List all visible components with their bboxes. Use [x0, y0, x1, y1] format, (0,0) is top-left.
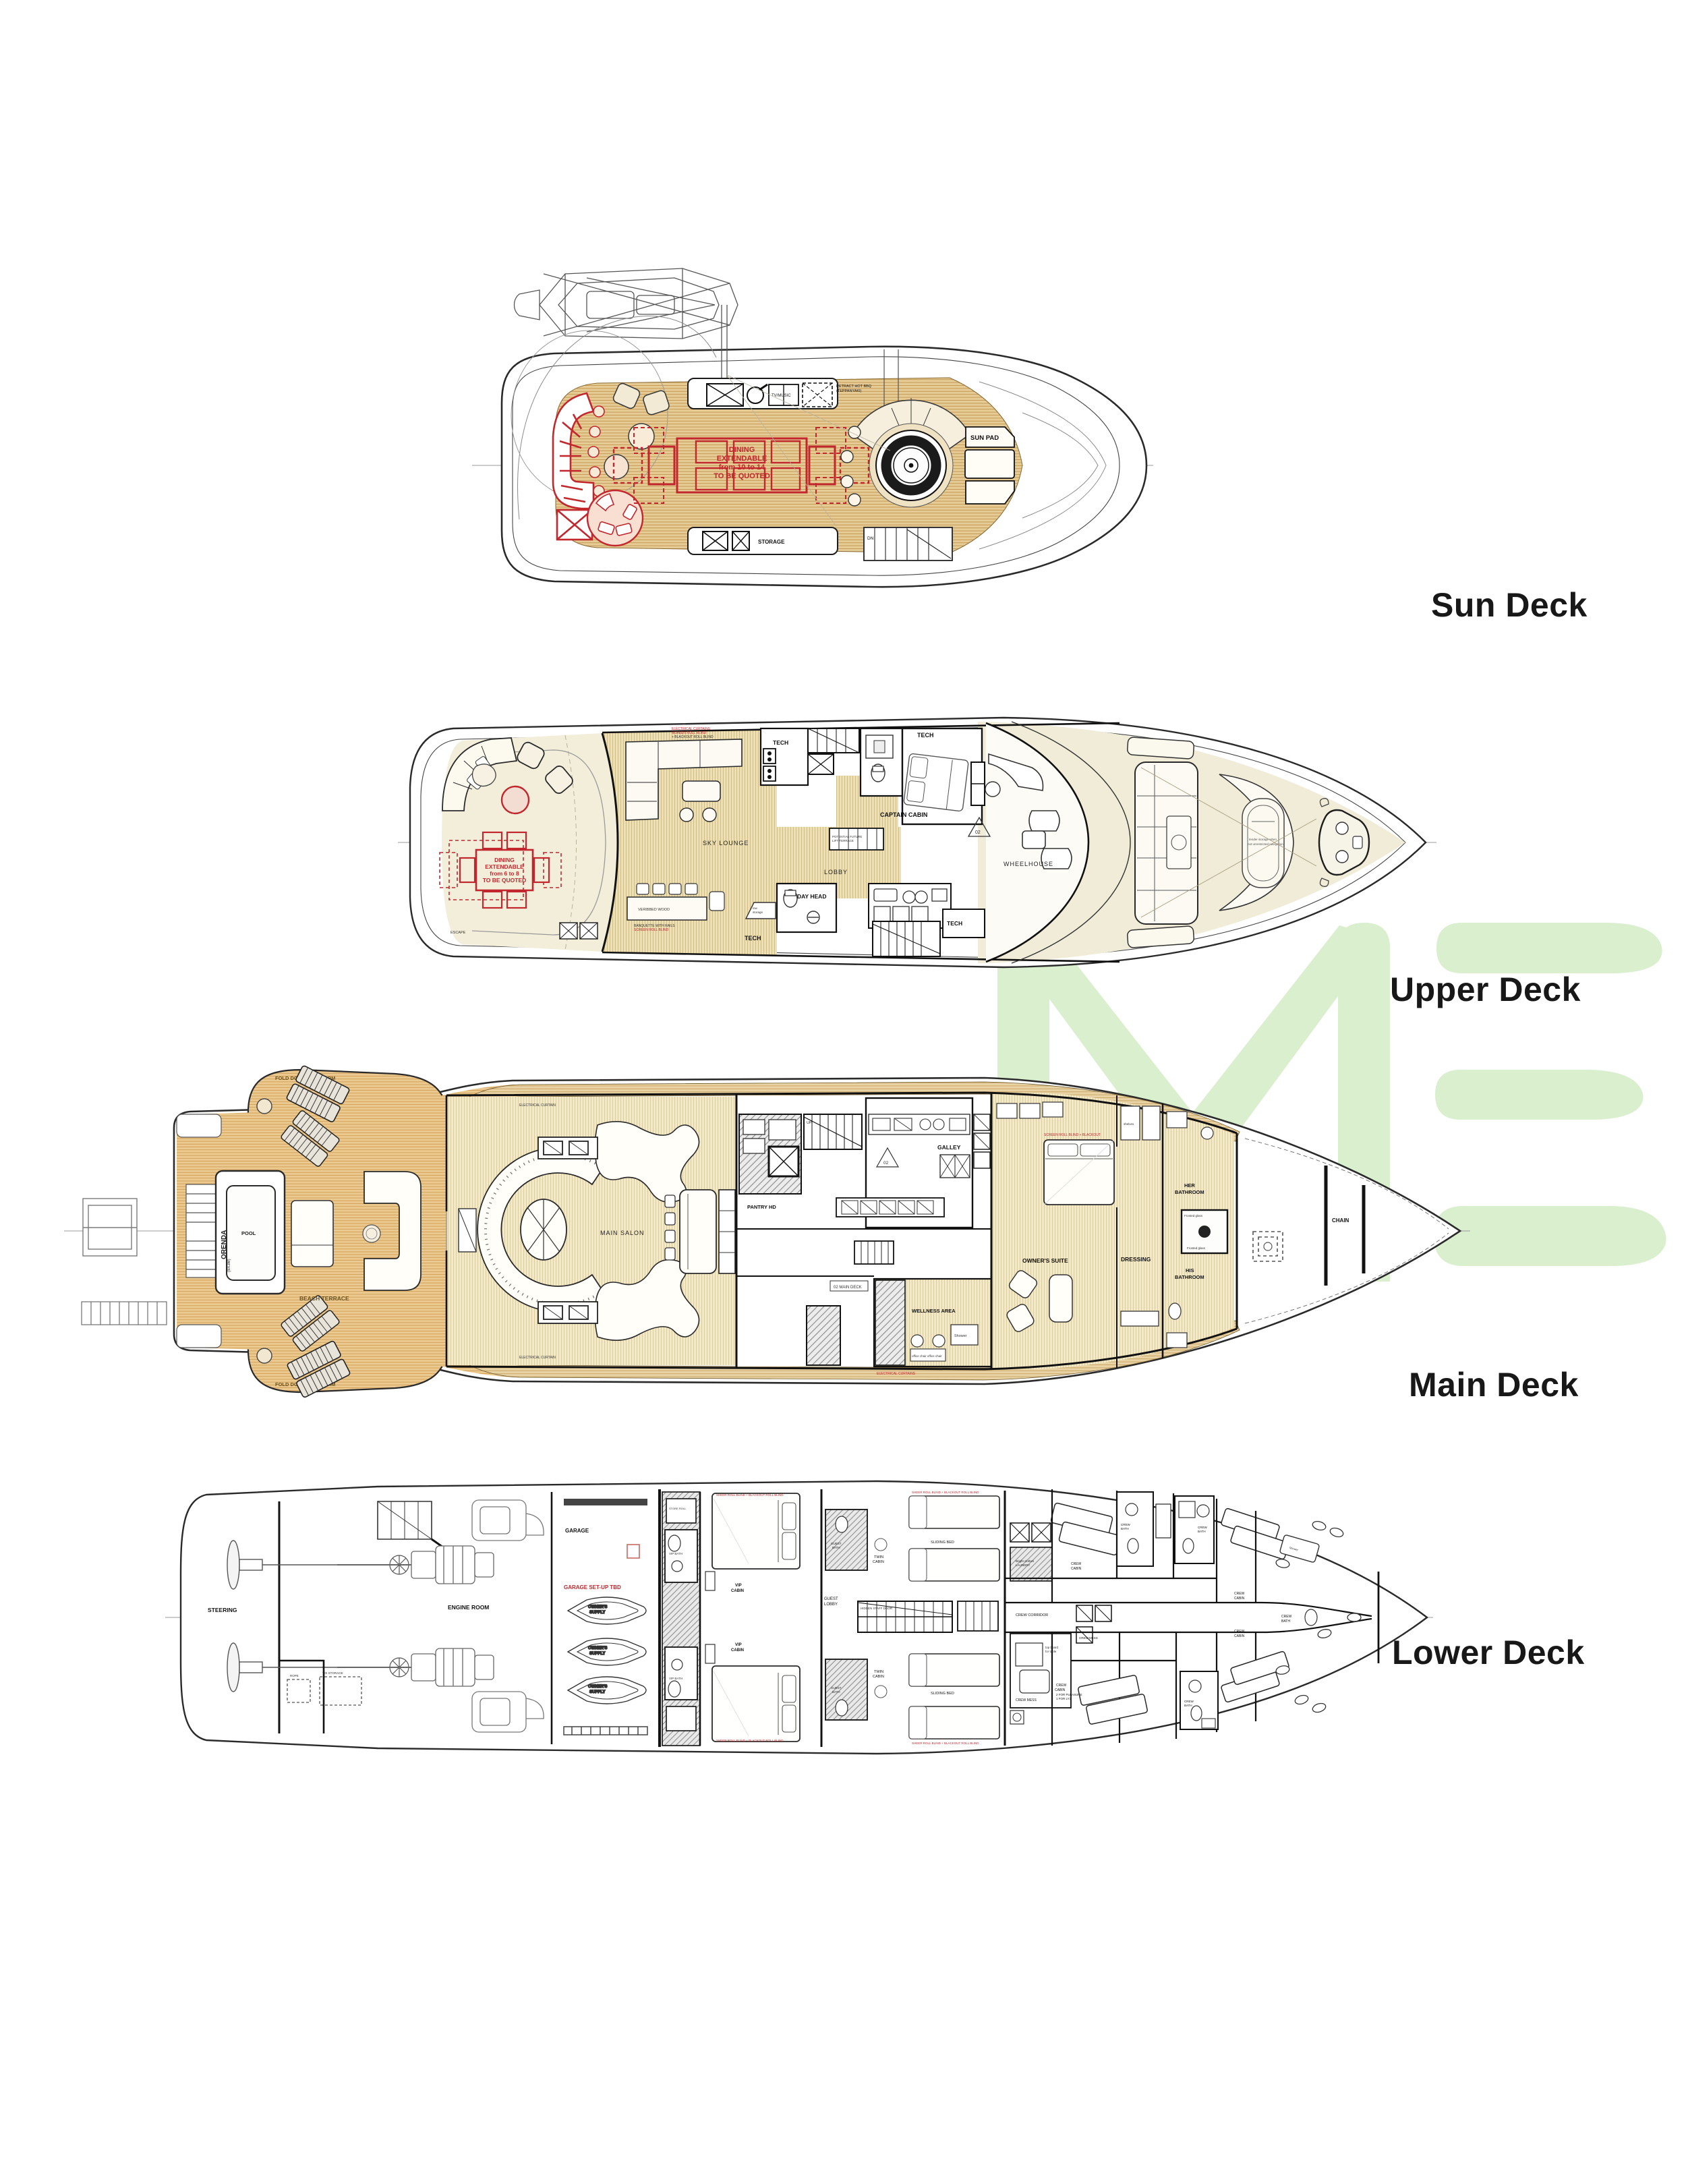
svg-text:CREW CORRIDOR: CREW CORRIDOR [1016, 1613, 1048, 1617]
svg-text:from 10 to 14: from 10 to 14 [719, 463, 765, 471]
svg-text:EXTENDABLE: EXTENDABLE [717, 455, 767, 463]
svg-text:CABIN: CABIN [1055, 1688, 1066, 1692]
svg-text:VIP BATH: VIP BATH [669, 1552, 682, 1555]
svg-text:LAUNDRY: LAUNDRY [1016, 1563, 1030, 1567]
svg-text:storage: storage [753, 911, 763, 914]
svg-text:MAIN SALON: MAIN SALON [600, 1230, 645, 1236]
svg-text:SHEER ROLL BLIND + BLACKOUT RO: SHEER ROLL BLIND + BLACKOUT ROLL BLIND [716, 1739, 784, 1742]
svg-text:TECH: TECH [917, 732, 934, 739]
svg-text:GUEST: GUEST [824, 1597, 838, 1601]
svg-text:OWNER'S: OWNER'S [588, 1605, 607, 1609]
svg-text:LIFT TERRACE: LIFT TERRACE [832, 839, 854, 842]
svg-text:WHEELHOUSE: WHEELHOUSE [1004, 861, 1053, 867]
svg-text:CREW MESS: CREW MESS [1079, 1636, 1098, 1640]
svg-text:BATH: BATH [832, 1690, 840, 1694]
svg-text:CREW: CREW [1184, 1700, 1194, 1703]
svg-text:UP: UP [807, 1121, 812, 1125]
svg-text:Shower: Shower [954, 1334, 967, 1338]
svg-text:DINING: DINING [729, 446, 755, 454]
svg-text:ESCAPE: ESCAPE [450, 931, 466, 935]
svg-text:EXTENDABLE: EXTENDABLE [485, 863, 524, 870]
svg-text:SCREEN ROLL BLIND: SCREEN ROLL BLIND [634, 928, 669, 932]
svg-text:BATH: BATH [832, 1546, 840, 1549]
svg-text:(8X3M): (8X3M) [227, 1259, 231, 1272]
svg-text:CABIN: CABIN [873, 1675, 884, 1679]
svg-text:HIDDEN STAFF DOOR: HIDDEN STAFF DOOR [861, 1607, 893, 1610]
svg-text:CREW: CREW [1234, 1592, 1245, 1596]
svg-text:GUEST: GUEST [831, 1686, 842, 1690]
svg-text:GARAGE SET-UP TBD: GARAGE SET-UP TBD [564, 1584, 621, 1590]
svg-text:(TEPPANYAKI): (TEPPANYAKI) [836, 389, 862, 393]
svg-text:TECH: TECH [745, 935, 761, 942]
svg-text:CREW: CREW [1071, 1562, 1082, 1566]
svg-text:not unrestricted navigation: not unrestricted navigation [1248, 842, 1283, 846]
svg-text:CREW: CREW [1281, 1615, 1292, 1619]
svg-text:low: low [753, 907, 758, 910]
svg-text:TWIN: TWIN [874, 1555, 883, 1559]
svg-text:TOI STORAGE: TOI STORAGE [322, 1671, 343, 1675]
svg-text:SHEER ROLL BLIND + BLACKOUT RO: SHEER ROLL BLIND + BLACKOUT ROLL BLIND [716, 1493, 784, 1497]
svg-text:from 6 to 8: from 6 to 8 [490, 870, 519, 877]
svg-text:CREW: CREW [1056, 1684, 1067, 1688]
svg-text:BATH: BATH [1281, 1619, 1290, 1623]
svg-text:DAY HEAD: DAY HEAD [797, 893, 826, 900]
svg-text:OWNER'S SUITE: OWNER'S SUITE [1022, 1257, 1068, 1264]
svg-text:SCREEN ROLL BLIND + BLACKOUT: SCREEN ROLL BLIND + BLACKOUT [1044, 1133, 1101, 1137]
svg-text:SUPPLY: SUPPLY [589, 1652, 605, 1656]
svg-text:2 FOR PLEASURE: 2 FOR PLEASURE [1056, 1693, 1082, 1696]
svg-text:tender storage when: tender storage when [1249, 838, 1277, 841]
svg-text:SKY LOUNGE: SKY LOUNGE [703, 840, 749, 846]
svg-text:POOL: POOL [241, 1230, 256, 1236]
svg-text:VIP: VIP [735, 1643, 742, 1647]
svg-text:ELECTRICAL CURTAINS: ELECTRICAL CURTAINS [877, 1372, 916, 1376]
svg-text:SLIDING BED: SLIDING BED [931, 1692, 954, 1696]
svg-text:CABIN: CABIN [1234, 1597, 1245, 1601]
svg-text:1 FOR LY3: 1 FOR LY3 [1056, 1697, 1072, 1700]
svg-text:HER: HER [1184, 1182, 1195, 1188]
svg-text:HIS: HIS [1186, 1267, 1194, 1273]
svg-text:BATH: BATH [1198, 1530, 1206, 1533]
svg-text:CABIN: CABIN [731, 1589, 744, 1593]
svg-text:STORE ROLL: STORE ROLL [669, 1507, 687, 1510]
svg-text:SUPPLY: SUPPLY [589, 1690, 605, 1694]
svg-text:TECH: TECH [773, 739, 788, 746]
svg-text:Bright clothes: Bright clothes [1016, 1559, 1035, 1563]
svg-text:02 MAIN DECK: 02 MAIN DECK [834, 1286, 862, 1290]
svg-text:GALLEY: GALLEY [937, 1144, 961, 1151]
svg-text:+ BLACKOUT ROLL BLIND: + BLACKOUT ROLL BLIND [672, 735, 714, 739]
svg-text:SLIDING BED: SLIDING BED [931, 1541, 954, 1545]
svg-text:LOBBY: LOBBY [824, 869, 848, 875]
svg-text:TO BE QUOTED: TO BE QUOTED [483, 877, 527, 884]
svg-text:CREW MESS: CREW MESS [1016, 1698, 1037, 1702]
svg-text:ELECTRICAL CURTAIN: ELECTRICAL CURTAIN [519, 1356, 556, 1360]
svg-text:TO BE QUOTED: TO BE QUOTED [714, 472, 770, 480]
svg-text:DINING: DINING [494, 857, 515, 863]
svg-text:STORAGE: STORAGE [758, 539, 785, 545]
svg-text:for table: for table [1045, 1650, 1057, 1653]
svg-text:STEERING: STEERING [208, 1607, 237, 1613]
svg-text:BATHROOM: BATHROOM [1175, 1274, 1204, 1280]
svg-text:02: 02 [975, 830, 981, 835]
svg-text:BATHROOM: BATHROOM [1175, 1189, 1204, 1195]
svg-text:CAPTAIN CABIN: CAPTAIN CABIN [880, 811, 927, 818]
svg-text:SUPPLY: SUPPLY [589, 1611, 605, 1615]
svg-text:SHEER ROLL BLIND + BLACKOUT RO: SHEER ROLL BLIND + BLACKOUT ROLL BLIND [912, 1491, 979, 1494]
svg-text:CREW: CREW [1198, 1526, 1208, 1529]
svg-text:CABIN: CABIN [731, 1648, 744, 1653]
svg-text:Frosted glass: Frosted glass [1184, 1214, 1203, 1217]
svg-text:BATH: BATH [1184, 1704, 1192, 1707]
svg-text:TECH: TECH [947, 920, 962, 927]
svg-text:OWNER'S: OWNER'S [588, 1685, 607, 1689]
svg-text:PANTRY HD: PANTRY HD [747, 1204, 776, 1210]
svg-text:WELLNESS AREA: WELLNESS AREA [912, 1308, 956, 1314]
svg-text:ELECTRICAL CURTAIN: ELECTRICAL CURTAIN [519, 1103, 556, 1108]
svg-text:TWIN: TWIN [874, 1670, 883, 1674]
svg-text:shelves: shelves [1124, 1122, 1134, 1126]
svg-text:CHAIN: CHAIN [1332, 1217, 1349, 1224]
svg-text:SHEER ROLL BLIND + BLACKOUT RO: SHEER ROLL BLIND + BLACKOUT ROLL BLIND [912, 1742, 979, 1745]
svg-text:POTENTIAL FUTURE: POTENTIAL FUTURE [832, 835, 862, 838]
svg-text:CABIN: CABIN [1071, 1567, 1082, 1571]
svg-text:RETRACT HOT BBQ: RETRACT HOT BBQ [836, 384, 872, 389]
svg-text:DN: DN [867, 536, 874, 541]
svg-text:VERIBBED WOOD: VERIBBED WOOD [638, 908, 670, 912]
svg-text:GUEST: GUEST [831, 1542, 842, 1545]
svg-text:OWNER'S: OWNER'S [588, 1646, 607, 1650]
svg-text:VIP BATH: VIP BATH [669, 1677, 682, 1680]
svg-text:SUN PAD: SUN PAD [970, 434, 999, 442]
svg-text:ENGINE ROOM: ENGINE ROOM [448, 1604, 489, 1611]
svg-text:LOBBY: LOBBY [824, 1603, 838, 1607]
svg-text:CREW: CREW [1121, 1523, 1131, 1526]
svg-text:CABIN: CABIN [873, 1560, 884, 1564]
svg-text:02: 02 [883, 1161, 889, 1166]
svg-text:BEACH TERRACE: BEACH TERRACE [299, 1295, 349, 1302]
svg-text:TV/MUSIC: TV/MUSIC [772, 394, 791, 398]
svg-text:DRESSING: DRESSING [1121, 1256, 1151, 1263]
svg-text:CABIN: CABIN [1234, 1634, 1245, 1638]
svg-text:ROPE: ROPE [290, 1674, 299, 1677]
svg-text:office chair office chair: office chair office chair [912, 1354, 942, 1358]
svg-text:VIP: VIP [735, 1584, 742, 1588]
svg-text:Frosted glass: Frosted glass [1187, 1246, 1206, 1250]
svg-text:GARAGE: GARAGE [565, 1528, 589, 1534]
svg-text:BATH: BATH [1121, 1527, 1129, 1530]
svg-text:ORENDA: ORENDA [221, 1230, 228, 1259]
